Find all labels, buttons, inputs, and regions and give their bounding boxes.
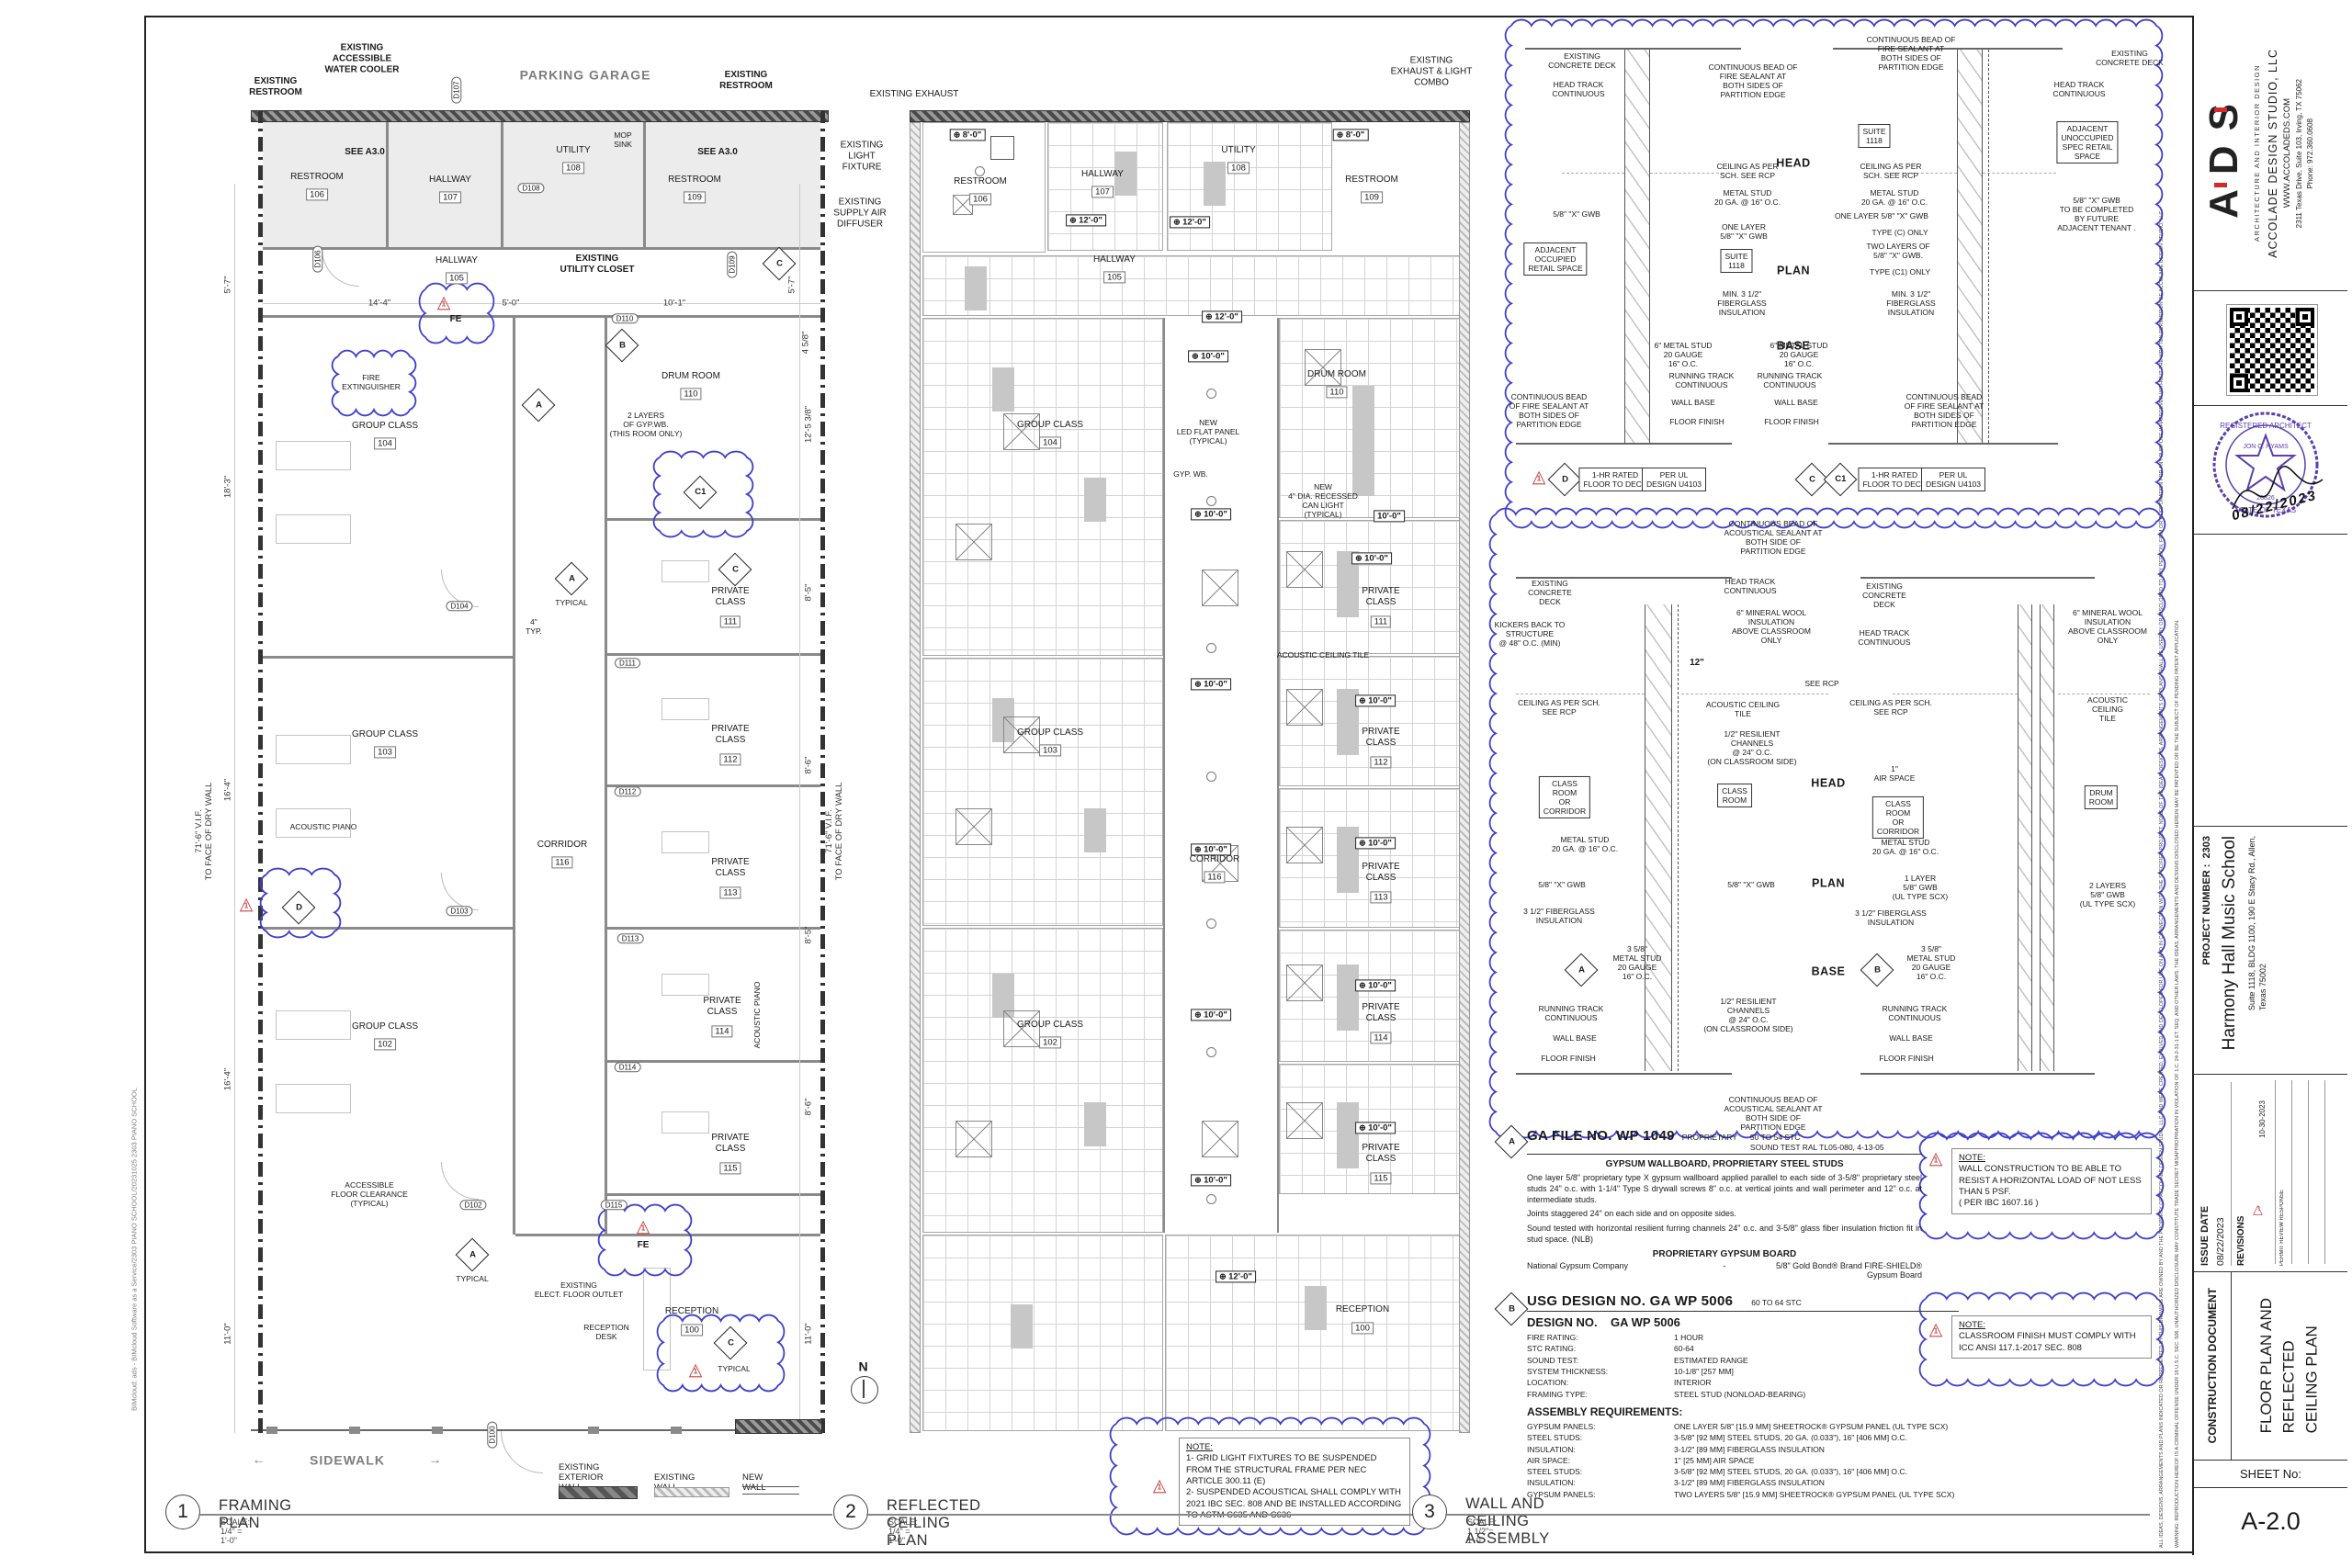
door-tag-d111: D111 xyxy=(615,658,640,668)
project-address-1: Suite 1118, BLDG 1100, 190 E Stacy Rd., … xyxy=(2247,836,2256,1010)
usg-stc: 60 TO 64 STC xyxy=(1751,1298,1802,1307)
acoustic-piano-label-1: ACOUSTIC PIANO xyxy=(290,822,357,831)
det2-fire-sealant-bottom: CONTINUOUS BEAD OF FIRE SEALANT AT BOTH … xyxy=(1905,392,1984,429)
shaded-tile xyxy=(1337,964,1359,1031)
det2-concrete-deck: EXISTING CONCRETE DECK xyxy=(2096,49,2164,67)
mop-sink-label: MOP SINK xyxy=(614,130,632,149)
existing-exhaust-label: EXISTING EXHAUST xyxy=(870,89,959,100)
det2-6-metal-stud: 6" METAL STUD 20 GAUGE 16" O.C. xyxy=(1770,341,1828,368)
rcp-ht-corr-6: 10'-0" xyxy=(1191,1174,1231,1186)
det3-kickers: KICKERS BACK TO STRUCTURE @ 48" O.C. (MI… xyxy=(1495,620,1566,648)
north-arrow-needle xyxy=(863,1380,865,1398)
rcp-utility-108: UTILITY xyxy=(1221,145,1255,156)
room-private-112: PRIVATE CLASS xyxy=(711,724,749,746)
fire-extinguisher-label: FIRE EXTINGUISHER xyxy=(342,373,401,391)
room-restroom-106-num: 106 xyxy=(306,188,328,200)
det3-resilient-2: 1/2" RESILIENT CHANNELS @ 24" O.C. (ON C… xyxy=(1703,997,1792,1033)
plan-number-2: 2 xyxy=(833,1495,868,1529)
ceiling-grid-utility xyxy=(1167,122,1332,251)
room-private-114-num: 114 xyxy=(711,1025,732,1037)
rcp-group-102-num: 102 xyxy=(1039,1036,1061,1048)
light-fixture-tile xyxy=(955,1121,992,1157)
wall xyxy=(607,518,820,521)
ads-logo-accent xyxy=(2214,183,2227,187)
dim-12-5-right: 12'-5 3/8" xyxy=(803,406,813,443)
det2-running-track: RUNNING TRACK CONTINUOUS xyxy=(1758,371,1823,389)
rcp-private-113-num: 113 xyxy=(1370,891,1391,903)
revision-1-date: 10-30-2023 xyxy=(2258,1100,2267,1138)
rcp-drum-room: DRUM ROOM xyxy=(1307,369,1366,380)
dim-14-4-top: 14'-4" xyxy=(368,298,390,308)
wall xyxy=(501,122,503,249)
rev-triangle-det1: △1 xyxy=(1530,469,1548,486)
det1-suite-1118-box: SUITE 1118 xyxy=(1720,249,1752,273)
existing-light-fixture-label: EXISTING LIGHT FIXTURE xyxy=(841,140,884,172)
exterior-wall xyxy=(910,110,1470,122)
led-flat-panel xyxy=(1202,1121,1238,1157)
det3-acoustic-tile: ACOUSTIC CEILING TILE xyxy=(1706,700,1780,718)
floor-line xyxy=(1516,1073,1732,1075)
acoustic-piano-label-2: ACOUSTIC PIANO xyxy=(752,982,762,1049)
det3-classroom-box: CLASS ROOM OR CORRIDOR xyxy=(1539,776,1590,818)
see-a30-left: SEE A3.0 xyxy=(345,147,385,158)
ceiling-grid-lobby xyxy=(922,1235,1163,1431)
piano xyxy=(276,1084,351,1113)
can-light xyxy=(1206,496,1216,506)
desk xyxy=(661,1111,709,1134)
usg-design-no: DESIGN NO. GA WP 5006 xyxy=(1527,1315,1959,1329)
ga-company: National Gypsum Company xyxy=(1527,1261,1711,1280)
det3-running-track: RUNNING TRACK CONTINUOUS xyxy=(1539,1004,1604,1022)
rcp-reception-100: RECEPTION xyxy=(1336,1304,1389,1315)
sheet-title: FLOOR PLAN AND REFLECTED CEILING PLAN xyxy=(2256,1298,2324,1433)
logo-tagline: ARCHITECTURE AND INTERIOR DESIGN xyxy=(2253,64,2261,242)
light-fixture-tile xyxy=(1003,413,1040,450)
sidewalk-arrow-right: → xyxy=(429,1452,443,1468)
det3-head-label: HEAD xyxy=(1811,777,1845,791)
rcp-ht-priv-4: 10'-0" xyxy=(1355,979,1396,991)
shaded-tile xyxy=(1084,1102,1106,1146)
fe-label-1: FE xyxy=(450,314,462,325)
det4-mineral-wool: 6" MINERAL WOOL INSULATION ABOVE CLASSRO… xyxy=(2068,608,2147,645)
ga-file-block: GA FILE NO. WP 1049 PROPRIETARY 50 TO 54… xyxy=(1527,1128,1922,1280)
desk xyxy=(661,698,709,720)
ceiling-grid-group-104 xyxy=(922,318,1163,656)
dim-18-3-left: 18'-3" xyxy=(222,476,232,498)
det2-ul-box: PER UL DESIGN U4103 xyxy=(1921,468,1985,491)
elect-floor-outlet-label: EXISTING ELECT. FLOOR OUTLET xyxy=(535,1280,623,1299)
det1-plan-label: PLAN xyxy=(1777,265,1810,278)
det4-running-track: RUNNING TRACK CONTINUOUS xyxy=(1883,1004,1948,1022)
tb-blank-section xyxy=(2194,535,2347,827)
wall xyxy=(607,784,820,787)
rcp-hallway-107: HALLWAY xyxy=(1081,169,1124,180)
wall-section-b-2 xyxy=(2040,604,2054,1071)
light-fixture-tile xyxy=(955,808,992,845)
room-corridor-116-num: 116 xyxy=(551,856,572,868)
door-tag-d115: D115 xyxy=(601,1200,628,1210)
dim-8-5-right-a: 8'-5" xyxy=(803,584,813,602)
rcp-ht-109: 8'-0" xyxy=(1333,129,1369,141)
rcp-reception-100-num: 100 xyxy=(1351,1322,1374,1334)
plan-number-1: 1 xyxy=(165,1495,200,1529)
rcp-ht-priv-3: 10'-0" xyxy=(1355,837,1396,849)
dim-8-5-right-b: 8'-5" xyxy=(803,927,813,944)
ceiling-grid-hallway-105 xyxy=(922,255,1470,316)
plan-title-rule xyxy=(866,1514,1464,1516)
det4-metal-stud: METAL STUD 20 GA. @ 16" O.C. xyxy=(1872,838,1939,856)
ceiling-line xyxy=(1893,694,2018,694)
future-gwb-line xyxy=(1988,50,1989,443)
wall xyxy=(607,653,820,656)
tb-project-section: PROJECT NUMBER : 2303 Harmony Hall Music… xyxy=(2194,827,2347,1075)
revision-row-line xyxy=(2308,1080,2309,1264)
det4-drum-room-box: DRUM ROOM xyxy=(2085,785,2118,809)
revision-row-line xyxy=(2324,1080,2325,1264)
deck-line xyxy=(1860,577,2095,579)
rcp-private-111: PRIVATE CLASS xyxy=(1362,586,1399,608)
det1-one-layer: ONE LAYER 5/8" "X" GWB xyxy=(1720,222,1768,241)
room-reception-100-num: 100 xyxy=(681,1324,703,1336)
rcp-private-112: PRIVATE CLASS xyxy=(1362,727,1399,749)
det4-concrete-deck: EXISTING CONCRETE DECK xyxy=(1862,581,1906,609)
rcp-private-114-num: 114 xyxy=(1370,1032,1391,1043)
rcp-private-113: PRIVATE CLASS xyxy=(1362,862,1399,884)
door-tag-d100: D100 xyxy=(487,1421,497,1448)
det3-ceiling-sch: CEILING AS PER SCH. SEE RCP xyxy=(1518,698,1600,716)
tb-qr-section xyxy=(2194,291,2347,406)
rev-triangle-c3: △1 xyxy=(686,1362,705,1379)
det2-rated-box: 1-HR RATED FLOOR TO DECK xyxy=(1858,468,1930,491)
can-light xyxy=(1206,919,1216,929)
rcp-ht-107: 12'-0" xyxy=(1066,214,1106,226)
room-hallway-105: HALLWAY xyxy=(435,255,478,266)
det4-head-track: HEAD TRACK CONTINUOUS xyxy=(1858,628,1910,647)
rcp-private-115: PRIVATE CLASS xyxy=(1362,1143,1399,1165)
rcp-corridor-116: CORRIDOR xyxy=(1190,854,1239,865)
exterior-wall xyxy=(735,1419,822,1434)
dim-line xyxy=(799,184,800,1433)
door-tag-d102: D102 xyxy=(459,1200,486,1210)
room-utility-108: UTILITY xyxy=(556,145,590,156)
desk xyxy=(661,974,709,996)
reception-desk xyxy=(643,1268,671,1371)
storefront-mullion xyxy=(266,1427,277,1434)
wall-section-c xyxy=(1957,50,1983,443)
det3-insulation: 3 1/2" FIBERGLASS INSULATION xyxy=(1523,907,1595,925)
wall xyxy=(263,656,515,659)
door-tag-d106: D106 xyxy=(312,245,322,272)
rcp-ht-corr-5: 10'-0" xyxy=(1191,1009,1231,1021)
det2-two-layers: TWO LAYERS OF 5/8" "X" GWB. xyxy=(1866,242,1929,260)
ceiling-restroom-106 xyxy=(922,122,1046,253)
usg-title: USG DESIGN NO. GA WP 5006 xyxy=(1527,1293,1733,1309)
exterior-wall xyxy=(251,110,829,122)
wall xyxy=(607,1060,820,1063)
door-tag-d110: D110 xyxy=(612,313,639,323)
piano xyxy=(276,1010,351,1040)
revision-row-line xyxy=(2275,1080,2276,1264)
light-fixture-tile xyxy=(1286,689,1323,726)
dim-11-0-left: 11'-0" xyxy=(222,1323,232,1345)
revision-1-desc: PERMIT REVIEW RESPONSE xyxy=(2279,1082,2285,1266)
floor-line xyxy=(1828,443,2058,445)
can-light xyxy=(1206,772,1216,782)
room-private-115-num: 115 xyxy=(719,1162,741,1174)
door-tag-d104: D104 xyxy=(446,601,472,611)
rcp-private-114: PRIVATE CLASS xyxy=(1362,1002,1399,1024)
revision-row-line xyxy=(2291,1080,2292,1264)
drawing-sheet: GA FILE NO. WP 1049 PROPRIETARY 50 TO 54… xyxy=(0,0,2352,1568)
det4-wall-base: WALL BASE xyxy=(1889,1033,1933,1043)
storefront-mullion xyxy=(349,1427,360,1434)
room-hallway-105-num: 105 xyxy=(446,272,468,284)
wall xyxy=(607,1193,820,1196)
existing-utility-closet-label: EXISTING UTILITY CLOSET xyxy=(560,254,635,276)
svg-text:JON C. HYAMS: JON C. HYAMS xyxy=(2243,444,2289,450)
piano xyxy=(276,735,351,764)
plan-scale-1: SCALE: 1/4" = 1'-0" xyxy=(220,1517,250,1545)
rev-triangle-notes1: △1 xyxy=(1927,1151,1945,1168)
usg-req-heading: ASSEMBLY REQUIREMENTS: xyxy=(1527,1405,1959,1418)
det2-wall-base: WALL BASE xyxy=(1774,398,1818,407)
light-fixture-tile xyxy=(1305,349,1341,386)
typical-a3: TYPICAL xyxy=(456,1274,488,1283)
led-flat-panel xyxy=(1202,570,1238,606)
det1-ul-box: PER UL DESIGN U4103 xyxy=(1642,468,1706,491)
can-light xyxy=(1206,1194,1216,1204)
ga-board-heading: PROPRIETARY GYPSUM BOARD xyxy=(1527,1249,1922,1259)
shaded-tile xyxy=(1084,478,1106,522)
det1-fire-sealant-bottom: CONTINUOUS BEAD OF FIRE SEALANT AT BOTH … xyxy=(1510,392,1589,429)
rcp-restroom-109-num: 109 xyxy=(1361,191,1383,203)
rcp-ht-priv-5: 10'-0" xyxy=(1355,1122,1396,1134)
can-light xyxy=(1206,643,1216,653)
rcp-ht-106: 8'-0" xyxy=(950,129,986,141)
det3-concrete-deck: EXISTING CONCRETE DECK xyxy=(1528,579,1572,606)
reception-desk-label: RECEPTION DESK xyxy=(583,1323,629,1341)
ceiling-line xyxy=(2058,694,2150,694)
shaded-tile xyxy=(1337,1102,1359,1168)
ceiling-grid-group-103 xyxy=(922,658,1163,926)
storefront-mullion xyxy=(432,1427,443,1434)
existing-supply-diffuser-label: EXISTING SUPPLY AIR DIFFUSER xyxy=(833,197,886,229)
ceiling-grid-reception xyxy=(1165,1235,1466,1431)
exhaust-fan xyxy=(990,136,1014,160)
vif-right: 71'-6" V.I.F. TO FACE OF DRY WALL xyxy=(824,783,844,881)
room-group-102-num: 102 xyxy=(374,1038,396,1050)
det3-classroom-box-2: CLASS ROOM xyxy=(1717,784,1752,807)
room-group-103: GROUP CLASS xyxy=(352,729,418,740)
company-phone: Phone: 972.360.0608 xyxy=(2306,118,2314,189)
rcp-ht-reception: 12'-0" xyxy=(1216,1270,1256,1282)
dim-8-6-right-b: 8'-6" xyxy=(803,1099,813,1116)
wall-section-d xyxy=(1624,50,1650,443)
room-private-115: PRIVATE CLASS xyxy=(711,1133,749,1155)
rev-triangle-d: △1 xyxy=(237,897,255,913)
rcp-group-103: GROUP CLASS xyxy=(1017,728,1083,739)
room-hallway-107: HALLWAY xyxy=(429,175,471,186)
rcp-utility-108-num: 108 xyxy=(1227,162,1249,174)
dim-16-4-left-a: 16'-4" xyxy=(222,779,232,801)
room-group-class-104-num: 104 xyxy=(374,437,396,449)
rcp-acoustic-tile-label: ACOUSTIC CEILING TILE xyxy=(1277,650,1369,660)
det3-gwb: 5/8" "X" GWB xyxy=(1538,880,1586,889)
svg-text:REGISTERED ARCHITECT: REGISTERED ARCHITECT xyxy=(2220,422,2312,430)
det1-wall-base: WALL BASE xyxy=(1671,398,1715,407)
tb-sheetno-label-section: SHEET No: xyxy=(2194,1461,2347,1488)
desk xyxy=(661,560,709,582)
room-restroom-109: RESTROOM xyxy=(668,175,721,186)
wall xyxy=(263,927,515,930)
ga-proprietary: PROPRIETARY xyxy=(1682,1133,1737,1142)
room-restroom-109-num: 109 xyxy=(684,191,706,203)
tb-doctype-section: CONSTRUCTION DOCUMENT FLOOR PLAN AND REF… xyxy=(2194,1272,2347,1461)
det1-ceiling-sch: CEILING AS PER SCH. SEE RCP xyxy=(1716,162,1778,180)
light-fixture-tile xyxy=(1286,551,1323,588)
shaded-tile xyxy=(1204,162,1226,206)
det2-adjacent-unoccupied-box: ADJACENT UNOCCUPIED SPEC RETAIL SPACE xyxy=(2056,121,2118,164)
ga-heading: GYPSUM WALLBOARD, PROPRIETARY STEEL STUD… xyxy=(1527,1159,1922,1169)
rcp-group-104-num: 104 xyxy=(1039,436,1061,448)
note-grid-lights: NOTE: 1- GRID LIGHT FIXTURES TO BE SUSPE… xyxy=(1179,1438,1410,1526)
det2-future-tenant: 5/8" "X" GWB TO BE COMPLETED BY FUTURE A… xyxy=(2057,196,2136,232)
det1-concrete-deck-left: EXISTING CONCRETE DECK xyxy=(1548,51,1616,70)
light-fixture-tile xyxy=(1286,827,1323,863)
det3-resilient: 1/2" RESILIENT CHANNELS @ 24" O.C. (ON C… xyxy=(1707,729,1796,766)
sidewalk-label: SIDEWALK xyxy=(310,1453,385,1469)
shaded-tile xyxy=(965,266,987,310)
legend-existing-exterior-swatch xyxy=(559,1486,638,1499)
det1-6-metal-stud: 6" METAL STUD 20 GAUGE 16" O.C. xyxy=(1655,341,1713,368)
exhaust-light-combo-label: EXISTING EXHAUST & LIGHT COMBO xyxy=(1391,55,1473,87)
det1-gwb: 5/8" "X" GWB xyxy=(1553,209,1600,219)
dim-5-7-right: 5'-7" xyxy=(786,276,797,294)
shaded-tile xyxy=(1084,808,1106,852)
plan-title-rule xyxy=(1445,1514,2150,1516)
det4-358-stud: 3 5/8" METAL STUD 20 GAUGE 16" O.C. xyxy=(1907,944,1956,981)
det4-acoustic-tile: ACOUSTIC CEILING TILE xyxy=(2087,695,2128,723)
rcp-ht-105: 12'-0" xyxy=(1202,310,1242,322)
det4-ceiling-sch: CEILING AS PER SCH. SEE RCP xyxy=(1849,698,1932,716)
company-website: WWW.ACCOLADEDS.COM xyxy=(2282,98,2292,208)
shaded-tile xyxy=(992,367,1014,412)
det3-acoustical-sealant-top: CONTINUOUS BEAD OF ACOUSTICAL SEALANT AT… xyxy=(1724,519,1822,556)
corridor-wall xyxy=(605,318,607,1235)
wall xyxy=(386,122,389,249)
ceiling-grid-group-102 xyxy=(922,928,1163,1233)
resilient-channel-line xyxy=(1678,604,1679,1071)
det1-insulation: MIN. 3 1/2" FIBERGLASS INSULATION xyxy=(1717,289,1766,317)
plan-title-rule xyxy=(198,1514,832,1516)
revision-1-triangle-num: 1 xyxy=(2257,1206,2261,1213)
det2-type-c: TYPE (C) ONLY xyxy=(1871,228,1928,237)
dim-5-7-left: 5'-7" xyxy=(222,276,232,294)
det3-metal-stud: METAL STUD 20 GA. @ 16" O.C. xyxy=(1552,835,1618,853)
sidewalk-arrow-left: ← xyxy=(253,1452,266,1468)
det1-fire-sealant-top: CONTINUOUS BEAD OF FIRE SEALANT AT BOTH … xyxy=(1709,62,1798,99)
room-drum-110: DRUM ROOM xyxy=(661,371,720,382)
door-tag-d109: D109 xyxy=(727,251,737,277)
ceiling-line xyxy=(1681,694,1828,694)
dim-line xyxy=(234,184,235,1433)
rcp-ht-drum: 10'-0" xyxy=(1374,510,1405,522)
det4-air-space: 1" AIR SPACE xyxy=(1874,764,1916,783)
dim-5-0-top: 5'-0" xyxy=(503,298,520,308)
room-private-113: PRIVATE CLASS xyxy=(711,857,749,879)
dim-line xyxy=(263,303,820,304)
ceiling-line xyxy=(1516,694,1645,694)
det1-floor-finish: FLOOR FINISH xyxy=(1669,417,1724,426)
ga-stc: 50 TO 54 STCSOUND TEST RAL TL05-080, 4-1… xyxy=(1750,1133,1884,1152)
rcp-private-112-num: 112 xyxy=(1370,756,1391,768)
room-utility-108-num: 108 xyxy=(562,162,584,174)
det3-mineral-wool: 6" MINERAL WOOL INSULATION ABOVE CLASSRO… xyxy=(1732,608,1811,645)
det2-suite-1118-box: SUITE 1118 xyxy=(1858,124,1890,148)
project-number: PROJECT NUMBER : 2303 xyxy=(2201,836,2212,965)
det2-floor-finish: FLOOR FINISH xyxy=(1764,417,1819,426)
legend-new-swatch xyxy=(742,1486,799,1495)
det3-358-stud: 3 5/8" METAL STUD 20 GAUGE 16" O.C. xyxy=(1613,944,1662,981)
rcp-group-102: GROUP CLASS xyxy=(1017,1020,1083,1031)
file-path-label: BIMcloud: ads - BIMcloud Software as a S… xyxy=(131,1088,140,1411)
gyp-wb-label: GYP. WB. xyxy=(1173,469,1208,479)
rev-triangle-fe1: △1 xyxy=(435,295,453,311)
det2-metal-stud: METAL STUD 20 GA. @ 16" O.C. xyxy=(1861,188,1928,207)
corridor-wall xyxy=(513,318,515,1235)
note-wall-construction: NOTE: WALL CONSTRUCTION TO BE ABLE TO RE… xyxy=(1951,1148,2152,1214)
ceiling-line xyxy=(1983,173,2056,174)
shaded-tile xyxy=(1305,1286,1327,1330)
rcp-ht-corr-2: 10'-0" xyxy=(1191,508,1231,520)
can-light xyxy=(1206,389,1216,399)
det3-head-track: HEAD TRACK CONTINUOUS xyxy=(1724,577,1776,595)
can-light xyxy=(975,166,985,176)
room-private-113-num: 113 xyxy=(719,886,741,898)
rcp-ht-priv-1: 10'-0" xyxy=(1351,552,1392,564)
sheet-no-label: SHEET No: xyxy=(2240,1467,2301,1481)
light-fixture-tile xyxy=(955,524,992,560)
wall-section-b-1 xyxy=(2018,604,2032,1071)
rcp-private-111-num: 111 xyxy=(1371,615,1391,627)
ga-para3: Sound tested with horizontal resilient f… xyxy=(1527,1224,1922,1245)
see-a30-right: SEE A3.0 xyxy=(697,147,738,158)
room-group-102: GROUP CLASS xyxy=(352,1021,418,1032)
wall-section-a xyxy=(1645,604,1672,1071)
door-tag-d107: D107 xyxy=(451,76,461,103)
det3-12in: 12" xyxy=(1690,658,1704,669)
wall xyxy=(607,927,820,930)
tb-logo-section: ADS ARCHITECTURE AND INTERIOR DESIGN ACC… xyxy=(2194,16,2347,291)
rcp-restroom-109: RESTROOM xyxy=(1345,175,1398,186)
issue-date-value: 08/22/2023 xyxy=(2215,1082,2226,1266)
det3-see-rcp: SEE RCP xyxy=(1804,679,1838,688)
ga-title: GA FILE NO. WP 1049 xyxy=(1527,1128,1675,1144)
room-group-class-104: GROUP CLASS xyxy=(352,421,418,432)
sheet-number: A-2.0 xyxy=(2241,1507,2301,1536)
room-group-103-num: 103 xyxy=(374,746,396,758)
det1-rated-box: 1-HR RATED FLOOR TO DECK xyxy=(1578,468,1651,491)
rev-triangle-notes2: △1 xyxy=(1927,1322,1945,1338)
tb-sheetno-section: A-2.0 xyxy=(2194,1488,2347,1555)
corridor-wall xyxy=(1277,318,1279,1233)
room-hallway-107-num: 107 xyxy=(439,191,461,203)
light-fixture-tile xyxy=(1286,1102,1323,1139)
issue-date-label: ISSUE DATE xyxy=(2199,1082,2211,1266)
new-led-panel-label: NEW LED FLAT PANEL (TYPICAL) xyxy=(1177,418,1240,446)
piano xyxy=(276,514,351,544)
rcp-drum-room-num: 110 xyxy=(1326,386,1347,398)
